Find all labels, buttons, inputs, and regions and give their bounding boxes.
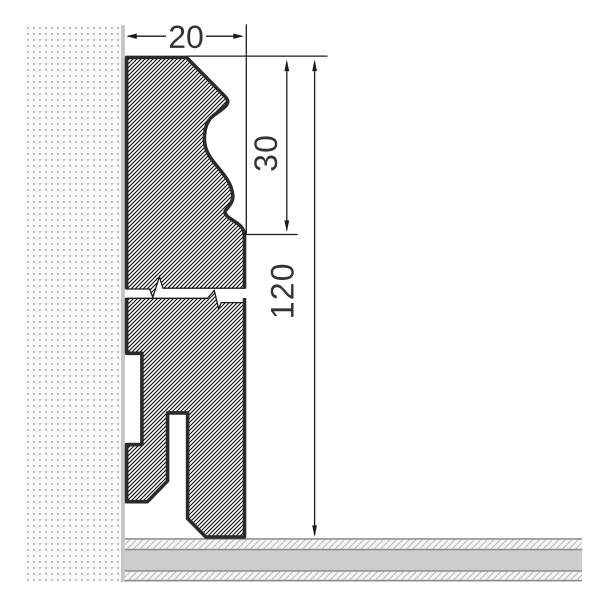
svg-text:20: 20: [168, 19, 204, 55]
svg-text:30: 30: [248, 134, 284, 172]
svg-text:120: 120: [264, 262, 300, 319]
